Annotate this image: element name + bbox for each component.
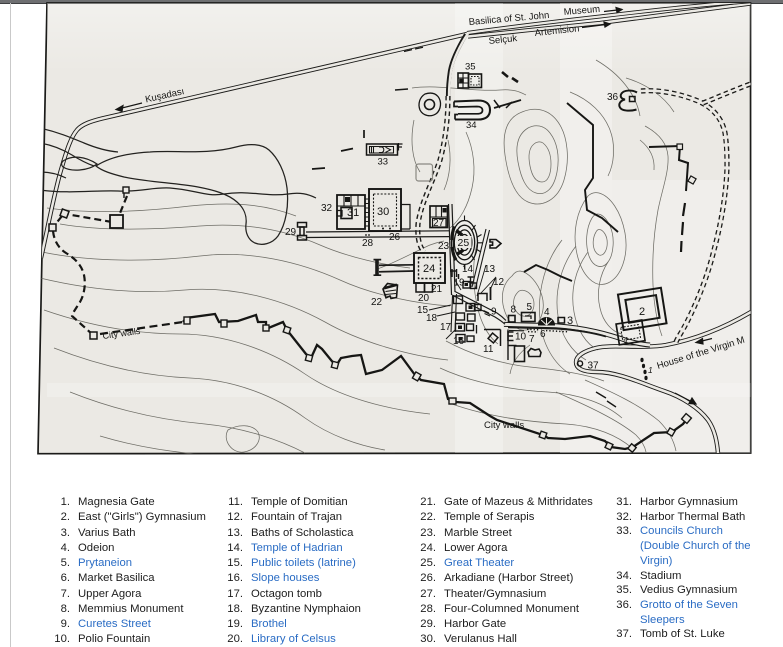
svg-text:36: 36 <box>607 92 619 103</box>
svg-text:30: 30 <box>377 206 389 218</box>
svg-text:16: 16 <box>453 336 465 347</box>
svg-text:5: 5 <box>527 302 533 313</box>
svg-text:11: 11 <box>483 344 494 355</box>
svg-text:37: 37 <box>588 361 600 372</box>
svg-text:29: 29 <box>285 227 297 238</box>
svg-text:31: 31 <box>347 207 359 219</box>
svg-text:34: 34 <box>466 120 477 131</box>
svg-text:3: 3 <box>567 315 573 327</box>
svg-text:8: 8 <box>511 305 517 316</box>
svg-text:10: 10 <box>515 332 527 343</box>
svg-text:7: 7 <box>529 334 535 345</box>
svg-text:1: 1 <box>624 336 628 345</box>
svg-text:4: 4 <box>544 307 550 318</box>
svg-text:17: 17 <box>440 322 452 333</box>
svg-text:32: 32 <box>321 203 333 214</box>
svg-text:24: 24 <box>423 263 435 275</box>
svg-text:1: 1 <box>648 365 653 375</box>
svg-text:21: 21 <box>431 284 443 295</box>
svg-text:35: 35 <box>465 62 476 73</box>
svg-text:9: 9 <box>491 307 497 318</box>
svg-text:28: 28 <box>362 238 374 249</box>
svg-text:20: 20 <box>418 293 430 304</box>
svg-text:2: 2 <box>639 306 645 318</box>
svg-text:33: 33 <box>378 157 389 168</box>
svg-text:25: 25 <box>458 237 470 249</box>
svg-text:27: 27 <box>433 218 445 229</box>
svg-text:23: 23 <box>438 241 450 252</box>
svg-text:6: 6 <box>540 329 546 340</box>
svg-text:18: 18 <box>426 313 438 324</box>
svg-text:City walls: City walls <box>484 420 524 431</box>
svg-text:22: 22 <box>371 297 383 308</box>
svg-text:26: 26 <box>389 232 401 243</box>
svg-text:14: 14 <box>462 264 474 275</box>
